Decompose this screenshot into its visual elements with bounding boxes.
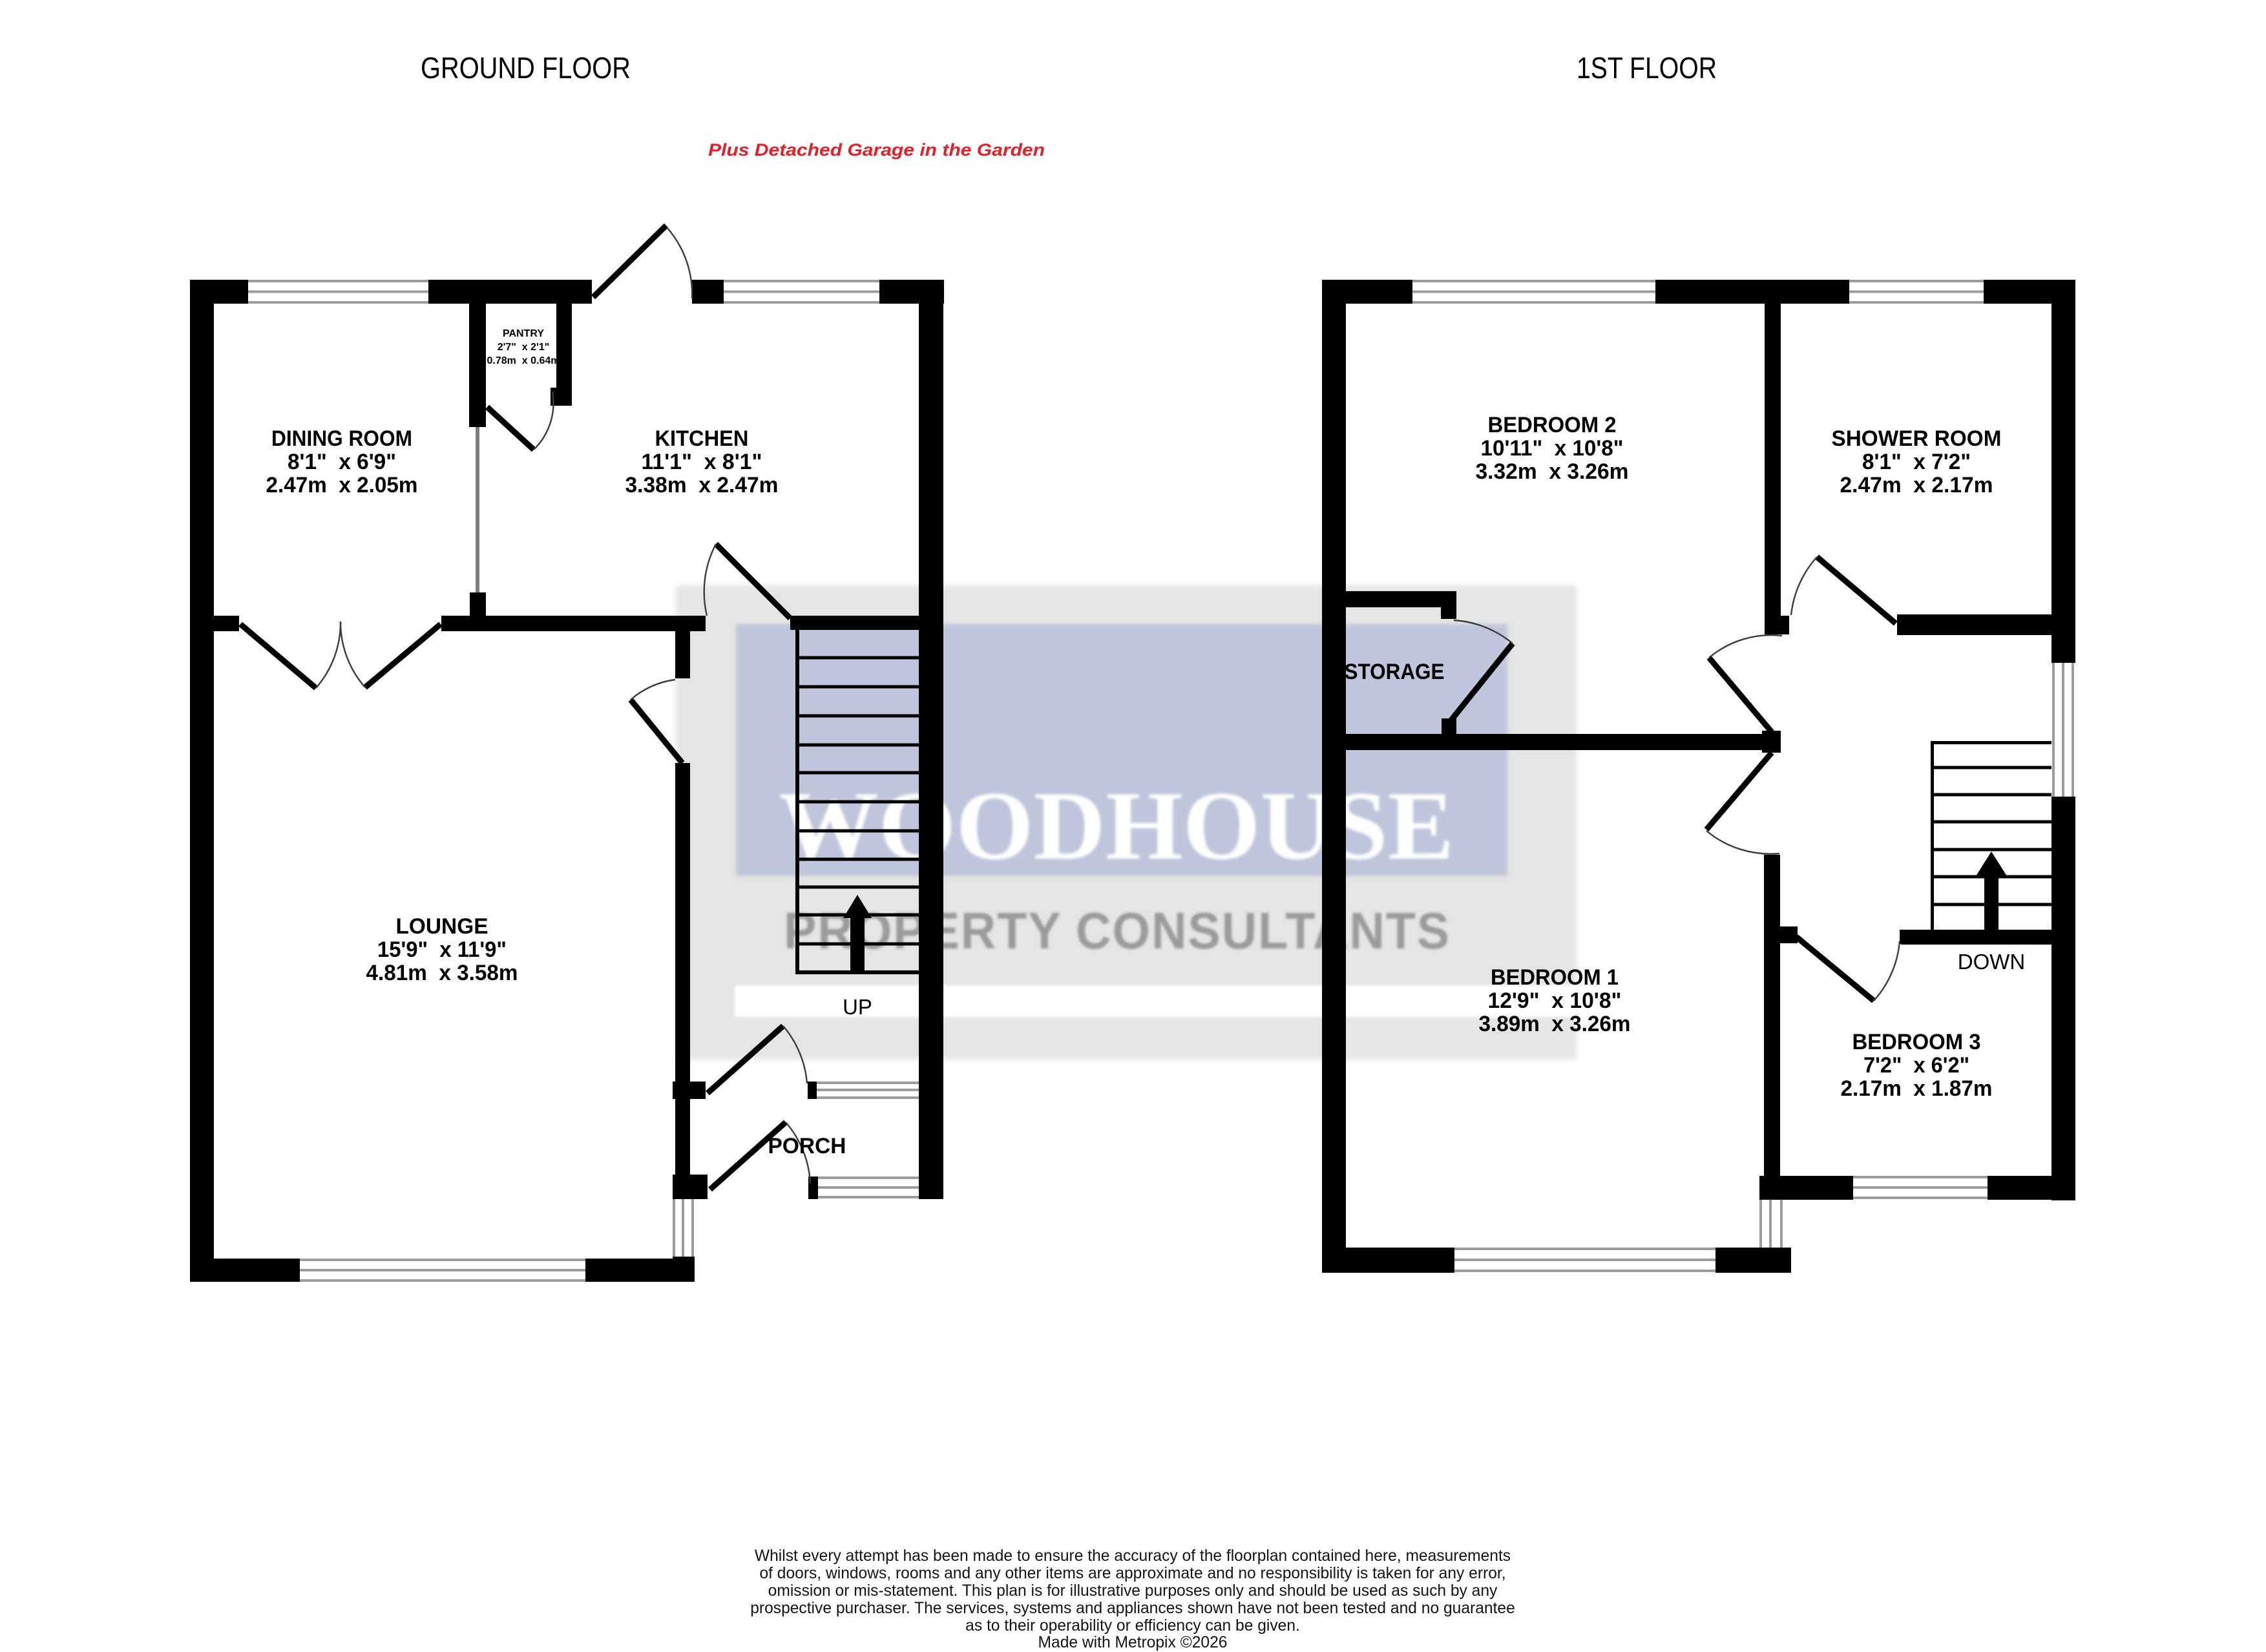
svg-text:LOUNGE: LOUNGE (396, 914, 488, 939)
svg-text:2.47m x 2.17m: 2.47m x 2.17m (1840, 473, 1993, 497)
svg-text:PROPERTY CONSULTANTS: PROPERTY CONSULTANTS (784, 902, 1451, 959)
svg-text:12'9" x 10'8": 12'9" x 10'8" (1488, 988, 1622, 1013)
svg-text:7'2" x 6'2": 7'2" x 6'2" (1863, 1053, 1969, 1078)
svg-text:2'7" x 2'1": 2'7" x 2'1" (498, 342, 550, 353)
svg-text:10'11" x 10'8": 10'11" x 10'8" (1481, 436, 1624, 461)
svg-text:Made with Metropix ©2026: Made with Metropix ©2026 (1038, 1634, 1228, 1651)
svg-text:2.17m x 1.87m: 2.17m x 1.87m (1841, 1076, 1993, 1101)
svg-text:8'1" x 7'2": 8'1" x 7'2" (1862, 450, 1971, 474)
svg-text:UP: UP (843, 995, 872, 1019)
svg-text:BEDROOM 3: BEDROOM 3 (1852, 1030, 1981, 1054)
svg-text:3.38m x 2.47m: 3.38m x 2.47m (625, 473, 779, 497)
svg-text:DINING ROOM: DINING ROOM (271, 426, 412, 451)
svg-text:11'1" x 8'1": 11'1" x 8'1" (642, 450, 762, 474)
svg-text:PANTRY: PANTRY (503, 328, 544, 339)
svg-text:Plus Detached Garage in the Ga: Plus Detached Garage in the Garden (708, 140, 1045, 160)
svg-text:omission or mis-statement. Thi: omission or mis-statement. This plan is … (768, 1582, 1498, 1600)
svg-text:0.78m x 0.64m: 0.78m x 0.64m (487, 355, 560, 366)
svg-text:BEDROOM 1: BEDROOM 1 (1491, 965, 1619, 990)
svg-text:of doors, windows, rooms and a: of doors, windows, rooms and any other i… (759, 1565, 1505, 1582)
svg-text:3.32m x 3.26m: 3.32m x 3.26m (1476, 459, 1629, 484)
svg-text:DOWN: DOWN (1958, 950, 2025, 974)
svg-text:1ST FLOOR: 1ST FLOOR (1577, 51, 1717, 85)
svg-text:Whilst every attempt has been: Whilst every attempt has been made to en… (755, 1547, 1511, 1565)
svg-text:BEDROOM 2: BEDROOM 2 (1488, 413, 1617, 437)
svg-text:2.47m x 2.05m: 2.47m x 2.05m (266, 473, 418, 497)
svg-text:prospective purchaser. The ser: prospective purchaser. The services, sys… (750, 1600, 1515, 1617)
svg-text:SHOWER ROOM: SHOWER ROOM (1832, 426, 2002, 451)
svg-text:4.81m x 3.58m: 4.81m x 3.58m (366, 961, 518, 985)
svg-text:as to their operability or eff: as to their operability or efficiency ca… (965, 1617, 1300, 1635)
svg-text:STORAGE: STORAGE (1345, 660, 1445, 684)
svg-text:KITCHEN: KITCHEN (655, 426, 749, 451)
svg-text:PORCH: PORCH (768, 1134, 846, 1158)
svg-text:15'9" x 11'9": 15'9" x 11'9" (377, 937, 507, 962)
svg-text:GROUND FLOOR: GROUND FLOOR (421, 51, 631, 85)
svg-text:3.89m x 3.26m: 3.89m x 3.26m (1479, 1012, 1631, 1036)
svg-text:WOODHOUSE: WOODHOUSE (779, 771, 1454, 880)
svg-text:8'1" x 6'9": 8'1" x 6'9" (288, 450, 396, 474)
